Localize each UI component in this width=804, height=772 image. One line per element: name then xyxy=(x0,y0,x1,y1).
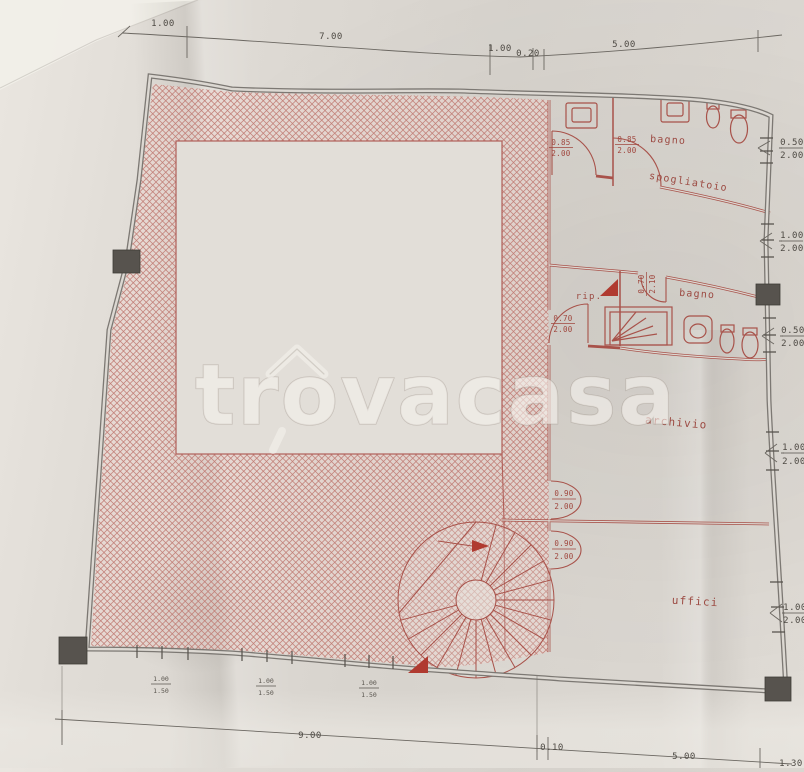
dim-label: 0.20 xyxy=(516,49,540,59)
svg-text:1.50: 1.50 xyxy=(258,689,274,697)
toilet-icon xyxy=(707,102,720,128)
svg-text:2.00: 2.00 xyxy=(617,146,636,155)
svg-text:1.50: 1.50 xyxy=(153,687,169,695)
svg-text:0.85: 0.85 xyxy=(617,135,636,144)
svg-text:trovacasa: trovacasa xyxy=(195,346,677,444)
svg-text:1.00: 1.00 xyxy=(258,677,274,685)
svg-text:2.00: 2.00 xyxy=(781,339,804,349)
svg-text:0.90: 0.90 xyxy=(554,539,573,548)
svg-text:0.50: 0.50 xyxy=(781,326,804,336)
dim-label: 1.30 xyxy=(779,759,803,768)
window-dim: 0.502.00 xyxy=(780,138,804,161)
svg-text:0.50: 0.50 xyxy=(780,138,804,148)
pillar xyxy=(756,284,780,305)
svg-text:2.00: 2.00 xyxy=(554,552,573,561)
triangle-marker xyxy=(600,279,618,296)
svg-text:2.00: 2.00 xyxy=(553,325,572,334)
room-label-spogliatoio: spogliatoio xyxy=(648,171,728,194)
svg-text:0.70: 0.70 xyxy=(553,314,572,323)
svg-text:2.10: 2.10 xyxy=(648,274,657,293)
door-dim: 0.702.10 xyxy=(637,272,657,296)
door-dim: 0.702.00 xyxy=(551,314,575,334)
sink-icon xyxy=(661,98,689,122)
dim-label: 9.00 xyxy=(298,731,322,741)
dim-label: 7.00 xyxy=(319,32,343,42)
svg-text:2.00: 2.00 xyxy=(551,149,570,158)
room-label-bagno-mid: bagno xyxy=(679,288,716,301)
pillar xyxy=(113,250,140,273)
svg-text:0.85: 0.85 xyxy=(551,138,570,147)
room-label-rip: rip. xyxy=(576,292,602,302)
pillar xyxy=(765,677,791,701)
window-dim: 1.002.00 xyxy=(782,443,804,467)
window-dim: 1.002.00 xyxy=(783,603,804,626)
svg-text:2.00: 2.00 xyxy=(780,244,804,254)
svg-text:2.00: 2.00 xyxy=(782,457,804,467)
svg-text:2.00: 2.00 xyxy=(780,151,804,161)
svg-text:1.50: 1.50 xyxy=(361,691,377,699)
toilet-icon xyxy=(731,110,748,143)
svg-text:1.00: 1.00 xyxy=(782,443,804,453)
svg-text:1.00: 1.00 xyxy=(153,675,169,683)
watermark: trovacasa xyxy=(195,346,677,450)
room-label-bagno-top: bagno xyxy=(650,134,687,147)
svg-text:2.00: 2.00 xyxy=(554,502,573,511)
svg-text:2.00: 2.00 xyxy=(783,616,804,626)
floor-plan-svg: 1.00 7.00 1.00 0.20 5.00 9.00 0.10 5.00 … xyxy=(0,0,804,768)
spiral-staircase xyxy=(398,522,554,678)
door-dim: 0.852.00 xyxy=(549,138,573,158)
right-window-dimensions: 0.502.00 1.002.00 0.502.00 1.002.00 1.00… xyxy=(780,138,804,626)
door-dim: 0.902.00 xyxy=(552,539,576,561)
svg-text:1.00: 1.00 xyxy=(361,679,377,687)
door-dim: 0.902.00 xyxy=(552,489,576,511)
svg-text:0.70: 0.70 xyxy=(637,274,646,293)
floor-plan-photo: { "watermark": { "pre": "tr", "o": "o", … xyxy=(0,0,804,768)
window-dim-small: 1.001.50 xyxy=(359,679,379,699)
window-dim: 1.002.00 xyxy=(780,231,804,254)
svg-text:0.90: 0.90 xyxy=(554,489,573,498)
pillar xyxy=(59,637,87,664)
dim-label: 1.00 xyxy=(151,19,175,29)
svg-text:1.00: 1.00 xyxy=(780,231,804,241)
door-dim: 0.852.00 xyxy=(615,135,639,155)
dim-label: 1.00 xyxy=(488,44,512,54)
dim-label: 5.00 xyxy=(612,40,636,50)
svg-text:1.00: 1.00 xyxy=(783,603,804,613)
room-label-ufficio: uffici xyxy=(671,594,719,609)
window-dim: 0.502.00 xyxy=(781,326,804,349)
dim-label: 5.00 xyxy=(672,752,696,762)
dim-label: 0.10 xyxy=(540,743,564,753)
